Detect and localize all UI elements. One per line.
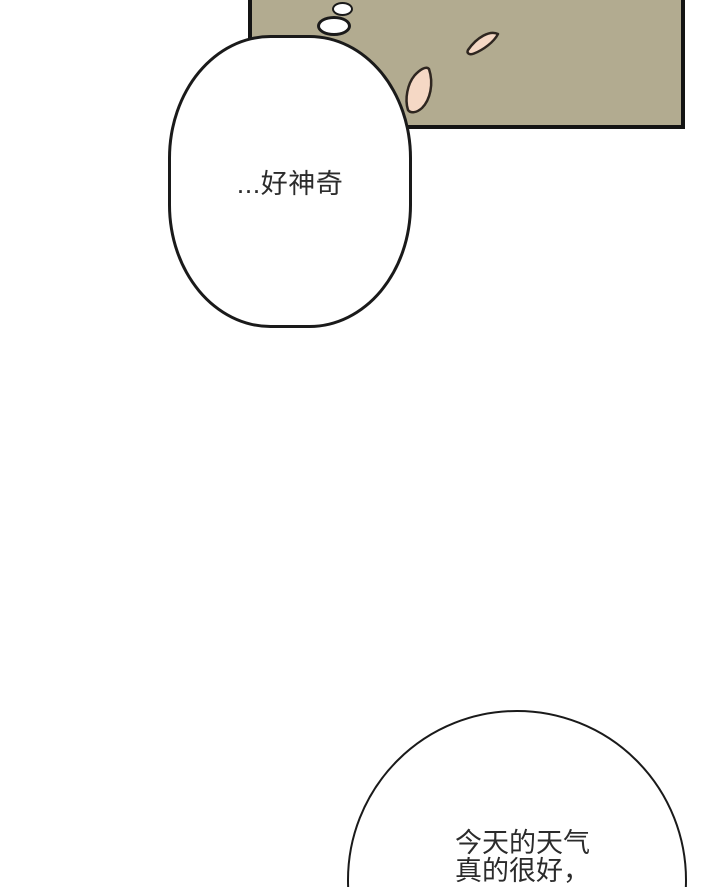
thought-bubble: ...好神奇 — [168, 35, 412, 328]
speech-bubble-text: 今天的天气 真的很好， — [455, 829, 590, 885]
speech-line-2: 真的很好， — [455, 857, 590, 885]
thought-trail-dot-large — [317, 16, 351, 36]
comic-page: ...好神奇 今天的天气 真的很好， — [0, 0, 720, 887]
thought-bubble-text: ...好神奇 — [237, 162, 344, 201]
speech-line-1: 今天的天气 — [455, 829, 590, 857]
thought-trail-dot-small — [332, 2, 353, 16]
